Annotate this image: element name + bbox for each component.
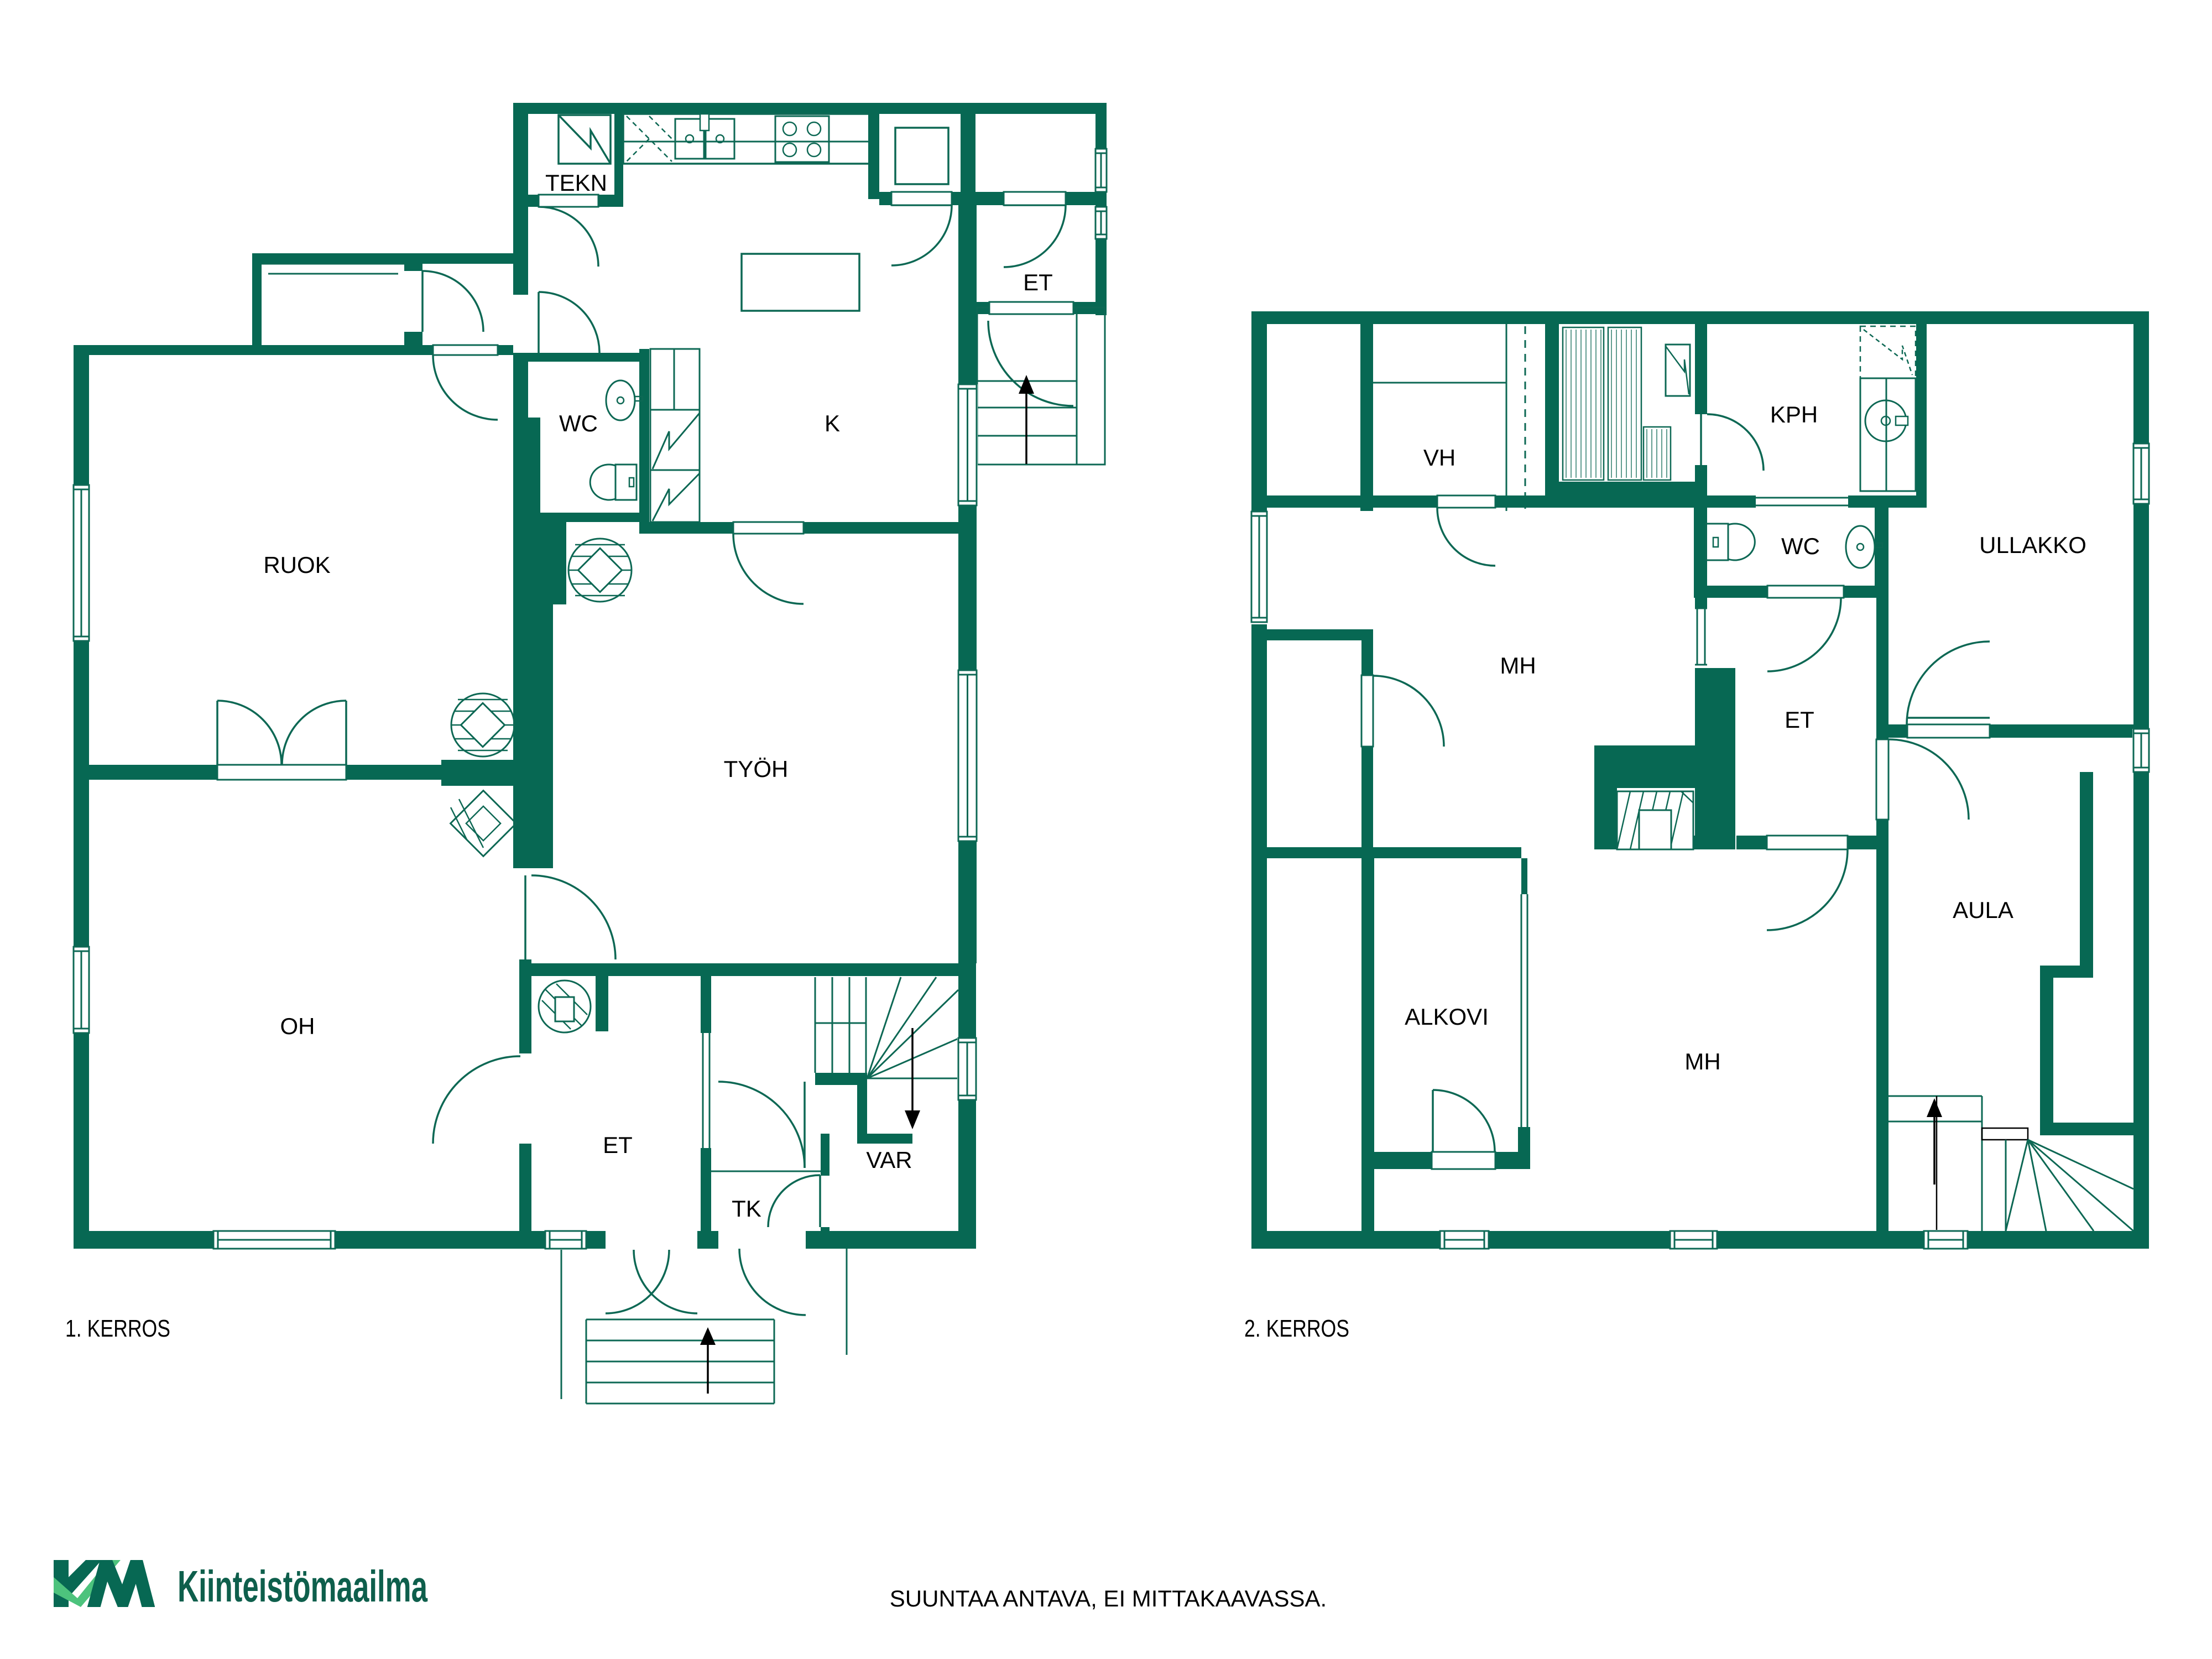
svg-text:WC: WC	[1781, 533, 1820, 559]
svg-text:Kiinteistömaailma: Kiinteistömaailma	[178, 1562, 427, 1611]
svg-text:TEKN: TEKN	[545, 170, 607, 196]
svg-text:ULLAKKO: ULLAKKO	[1979, 532, 2086, 558]
svg-text:VH: VH	[1423, 445, 1455, 471]
svg-text:MH: MH	[1500, 653, 1536, 679]
svg-text:AULA: AULA	[1953, 897, 2013, 923]
svg-text:TYÖH: TYÖH	[724, 756, 789, 782]
svg-text:WC: WC	[559, 410, 598, 436]
svg-text:1. KERROS: 1. KERROS	[65, 1315, 170, 1342]
svg-text:VAR: VAR	[866, 1147, 912, 1173]
svg-text:ET: ET	[1023, 269, 1053, 295]
svg-text:RUOK: RUOK	[263, 552, 330, 578]
svg-text:TK: TK	[732, 1196, 761, 1222]
svg-text:MH: MH	[1684, 1048, 1720, 1074]
svg-text:SUUNTAA ANTAVA, EI MITTAKAAVAS: SUUNTAA ANTAVA, EI MITTAKAAVASSA.	[890, 1585, 1327, 1611]
svg-text:K: K	[825, 410, 840, 436]
svg-text:ET: ET	[1785, 707, 1814, 733]
svg-text:OH: OH	[280, 1013, 315, 1039]
svg-text:KPH: KPH	[1770, 401, 1818, 427]
svg-text:2. KERROS: 2. KERROS	[1244, 1315, 1349, 1342]
svg-text:ET: ET	[603, 1132, 633, 1158]
svg-text:ALKOVI: ALKOVI	[1405, 1004, 1489, 1030]
